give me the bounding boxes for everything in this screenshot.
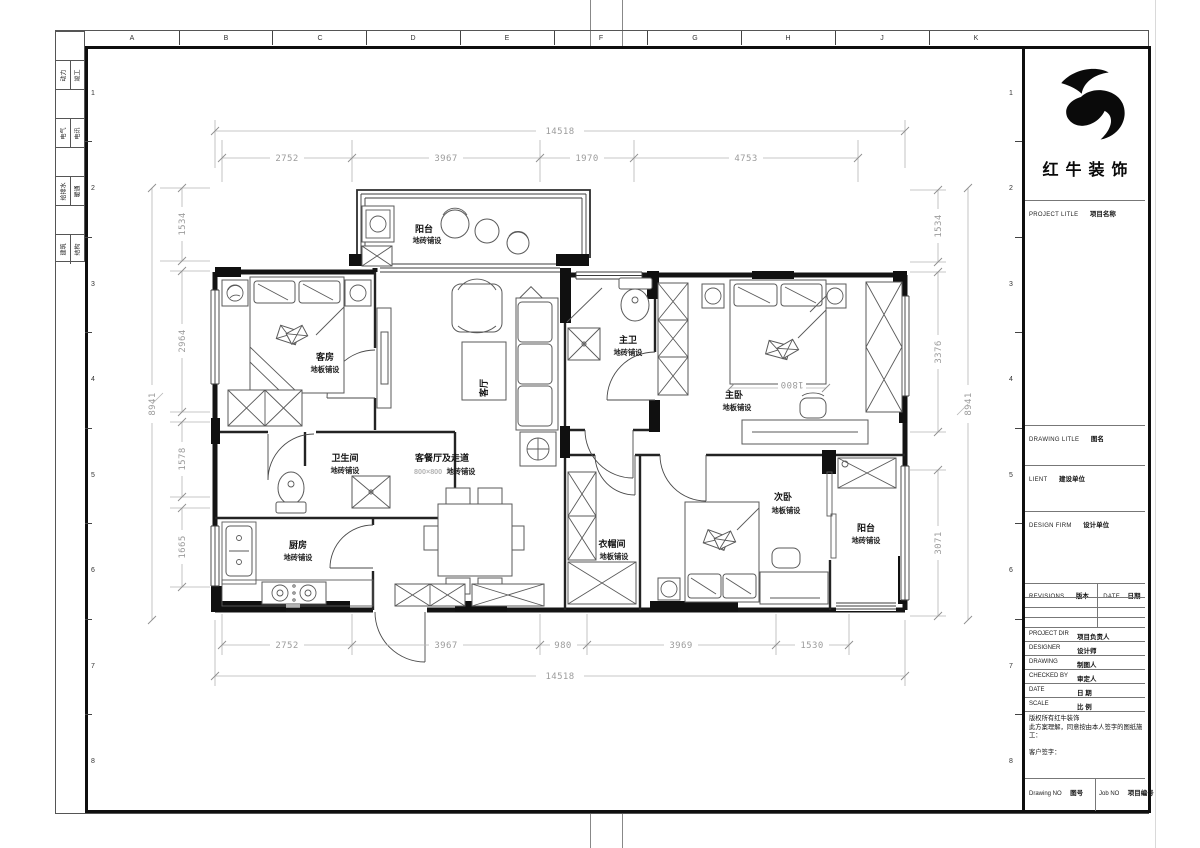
grid-tick	[741, 31, 742, 45]
svg-text:1530: 1530	[800, 641, 823, 651]
svg-text:4753: 4753	[734, 154, 757, 164]
room-label-hall: 客餐厅及走道	[414, 452, 469, 463]
grid-letter: K	[969, 32, 983, 45]
grid-tick	[554, 31, 555, 45]
svg-text:地板铺设: 地板铺设	[600, 552, 630, 561]
grid-letter: B	[219, 32, 233, 45]
signoff-label: 结构	[73, 243, 82, 255]
number-tick	[85, 237, 92, 238]
fold-mark-bottom-left	[590, 810, 591, 848]
svg-text:1970: 1970	[575, 154, 598, 164]
room-label-balcony-top: 阳台	[415, 223, 433, 234]
number-tick	[1015, 332, 1022, 333]
section-copyright: 版权所有红牛装饰 此方案理解，同意按由本人签字的图纸施工： 客户签字：	[1025, 711, 1145, 778]
floor-plan: .wx{stroke:#141414;stroke-width:5;fill:n…	[85, 46, 1022, 807]
number-tick	[1015, 619, 1022, 620]
section-drawing-title: DRAWING LITLE 图名	[1025, 425, 1145, 465]
svg-text:980: 980	[554, 641, 571, 651]
room-label-living: 客厅	[478, 379, 489, 398]
signoff-label: 暖通	[73, 185, 82, 197]
svg-text:1578: 1578	[178, 447, 188, 470]
section-revisions: REVISIONS 版本 DATE 日期	[1025, 583, 1145, 627]
sheet-edge-line	[1155, 0, 1156, 848]
svg-text:3969: 3969	[669, 641, 692, 651]
svg-text:地板铺设: 地板铺设	[772, 506, 802, 515]
svg-text:14518: 14518	[545, 672, 574, 682]
room-label-cloakroom: 衣帽间	[598, 538, 625, 549]
signoff-strip: 动力 竣工 电气 电讯 给排水 暖通 建筑 结构	[55, 30, 85, 262]
number-tick	[85, 619, 92, 620]
grid-tick	[179, 31, 180, 45]
number-tick	[1015, 523, 1022, 524]
title-block: 红牛装饰 PROJECT LITLE 项目名称 DRAWING LITLE 图名…	[1025, 46, 1145, 810]
grid-letter: F	[594, 32, 608, 45]
revisions-column-divider	[1097, 584, 1098, 628]
svg-text:1534: 1534	[934, 214, 944, 237]
svg-text:1534: 1534	[178, 212, 188, 235]
room-label-second-bedroom: 次卧	[774, 491, 792, 502]
grid-letter: J	[875, 32, 889, 45]
svg-text:8941: 8941	[964, 392, 974, 415]
living-furniture	[377, 279, 558, 606]
row-drawing: DRAWING 制图人	[1025, 655, 1145, 669]
grid-tick	[272, 31, 273, 45]
brand-name: 红牛装饰	[1025, 156, 1145, 180]
bull-logo-icon	[1040, 60, 1130, 152]
svg-text:地砖铺设: 地砖铺设	[284, 553, 314, 562]
section-design-firm: DESIGN FIRM 设计单位 南京红牛装饰有限公司 地址：龙蟠中路458号一…	[1025, 511, 1145, 583]
client-signature-label: 客户签字：	[1029, 749, 1145, 758]
svg-text:地砖铺设: 地砖铺设	[852, 536, 882, 545]
svg-text:地砖铺设: 地砖铺设	[614, 348, 644, 357]
svg-text:2752: 2752	[275, 154, 298, 164]
room-label-bathroom: 卫生间	[331, 452, 358, 463]
number-tick	[1015, 714, 1022, 715]
section-numbers: Drawing NO 图号 Job NO 项目编号	[1025, 778, 1145, 810]
cloakroom-furniture	[568, 472, 636, 604]
signoff-label: 竣工	[73, 69, 82, 81]
grid-tick	[647, 31, 648, 45]
balcony-top-furniture	[362, 206, 529, 266]
room-label-balcony-bottom: 阳台	[857, 522, 875, 533]
svg-text:地板铺设: 地板铺设	[311, 365, 341, 374]
number-tick	[1015, 237, 1022, 238]
kitchen-furniture	[222, 522, 373, 606]
copyright-line1: 版权所有红牛装饰	[1029, 715, 1145, 724]
grid-letter: H	[781, 32, 795, 45]
svg-text:8941: 8941	[148, 392, 158, 415]
section-client: LIENT 建设单位	[1025, 465, 1145, 511]
svg-text:3071: 3071	[934, 531, 944, 554]
balcony-bottom-furniture	[838, 458, 896, 488]
signoff-label: 给排水	[58, 182, 67, 200]
room-label-master-bath: 主卫	[619, 334, 637, 345]
room-label-guest: 客房	[315, 351, 334, 362]
svg-text:3376: 3376	[934, 340, 944, 363]
svg-text:1800: 1800	[780, 379, 803, 389]
signoff-label: 电讯	[73, 127, 82, 139]
svg-text:14518: 14518	[545, 127, 574, 137]
numbers-column-divider	[1095, 779, 1096, 811]
fold-mark-bottom-right	[622, 810, 623, 848]
signoff-label: 电气	[58, 127, 67, 139]
master-bedroom-furniture	[658, 280, 902, 444]
svg-text:2964: 2964	[178, 329, 188, 352]
svg-text:地砖铺设: 地砖铺设	[331, 466, 361, 475]
number-tick	[85, 523, 92, 524]
second-bedroom-furniture	[658, 502, 828, 604]
svg-text:3967: 3967	[434, 154, 457, 164]
bathroom-furniture	[276, 472, 390, 513]
number-tick	[1015, 428, 1022, 429]
svg-text:800×800: 800×800	[414, 467, 442, 476]
row-project-dir: PROJECT DIR 项目负责人	[1025, 627, 1145, 641]
svg-text:3967: 3967	[434, 641, 457, 651]
section-project-title: PROJECT LITLE 项目名称	[1025, 200, 1145, 425]
number-tick	[85, 714, 92, 715]
copyright-line2: 此方案理解，同意按由本人签字的图纸施工：	[1029, 724, 1145, 741]
grid-letter: E	[500, 32, 514, 45]
svg-text:2752: 2752	[275, 641, 298, 651]
row-date: DATE 日 期	[1025, 683, 1145, 697]
svg-text:1665: 1665	[178, 535, 188, 558]
guest-room-furniture	[222, 277, 371, 426]
grid-letter: A	[125, 32, 139, 45]
room-label-kitchen: 厨房	[289, 539, 307, 550]
grid-tick	[835, 31, 836, 45]
number-tick	[85, 428, 92, 429]
grid-tick	[460, 31, 461, 45]
row-designer: DESIGNER 设计师	[1025, 641, 1145, 655]
number-tick	[85, 141, 92, 142]
row-checked-by: CHECKED BY 审定人	[1025, 669, 1145, 683]
grid-letter: G	[688, 32, 702, 45]
svg-text:地板铺设: 地板铺设	[723, 403, 753, 412]
grid-tick	[929, 31, 930, 45]
grid-letter: C	[313, 32, 327, 45]
row-scale: SCALE 比 例	[1025, 697, 1145, 711]
signoff-label: 建筑	[58, 243, 67, 255]
svg-text:地砖铺设: 地砖铺设	[413, 236, 443, 245]
number-tick	[1015, 141, 1022, 142]
drawing-sheet: A B C D E F G H J K 1 2 3 4 5 6 7 8 1 2 …	[0, 0, 1200, 848]
grid-letter: D	[406, 32, 420, 45]
signoff-label: 动力	[58, 69, 67, 81]
number-tick	[85, 332, 92, 333]
svg-text:地砖铺设: 地砖铺设	[447, 467, 477, 476]
grid-tick	[366, 31, 367, 45]
